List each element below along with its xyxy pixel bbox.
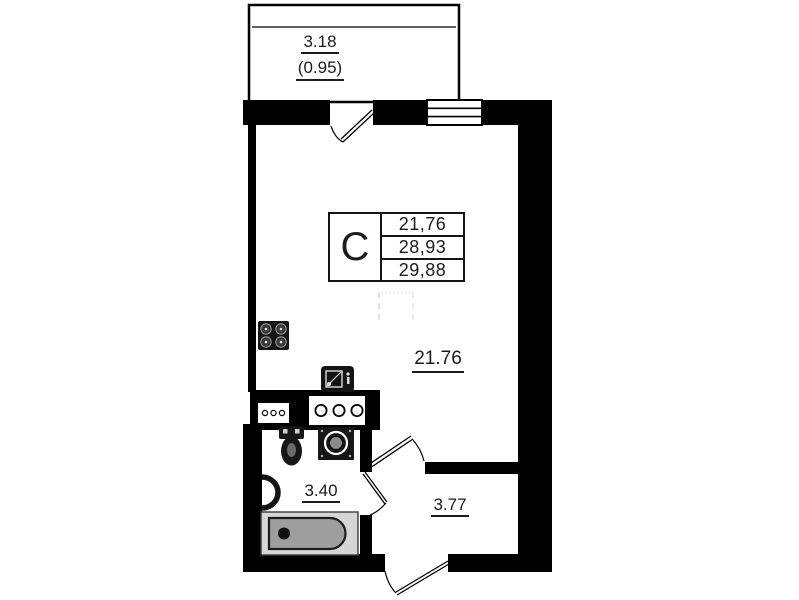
living-area-value: 21.76 bbox=[412, 347, 464, 373]
kitchen-sink-icon bbox=[321, 366, 354, 392]
balcony-reduced-area-value: (0.95) bbox=[296, 57, 344, 80]
hallway-area-label: 3.77 bbox=[420, 494, 480, 517]
washing-machine-icon bbox=[318, 427, 354, 460]
bathroom-area-label: 3.40 bbox=[292, 480, 350, 503]
bathroom-area-value: 3.40 bbox=[302, 480, 339, 503]
entrance-door-swing-icon bbox=[385, 561, 449, 595]
balcony-door-swing-icon bbox=[331, 110, 374, 142]
walls bbox=[243, 100, 552, 572]
wall-bath-right-upper bbox=[360, 430, 372, 472]
unit-info-table: C 21,76 28,93 29,88 bbox=[328, 212, 465, 282]
wall-right bbox=[518, 100, 552, 572]
vent-duct-small-icon bbox=[257, 402, 290, 424]
room-door-swing-icon bbox=[368, 436, 424, 468]
bathtub-icon bbox=[261, 512, 358, 555]
floor-plan: C 21,76 28,93 29,88 3.18 (0.95) 21.76 3.… bbox=[0, 0, 799, 600]
wall-left-thick bbox=[243, 424, 262, 572]
wall-bottom-right bbox=[448, 554, 552, 572]
hallway-area-value: 3.77 bbox=[431, 494, 468, 517]
bathroom-door-swing-icon bbox=[363, 472, 387, 515]
wall-top-left bbox=[243, 100, 330, 125]
scan-artifact bbox=[378, 292, 414, 320]
living-area-label: 21.76 bbox=[401, 347, 475, 373]
stove-icon bbox=[258, 321, 289, 350]
vent-duct-large-icon bbox=[308, 395, 366, 426]
unit-type-cell: C bbox=[330, 214, 382, 280]
wash-basin-icon bbox=[262, 477, 278, 508]
unit-areas-column: 21,76 28,93 29,88 bbox=[382, 214, 463, 280]
unit-area-row: 29,88 bbox=[382, 258, 463, 281]
wall-room-hall bbox=[425, 462, 518, 474]
balcony-area-label: 3.18 (0.95) bbox=[258, 31, 382, 81]
toilet-icon bbox=[279, 426, 304, 466]
unit-area-row: 28,93 bbox=[382, 235, 463, 258]
wall-top-mid bbox=[373, 100, 427, 125]
unit-area-row: 21,76 bbox=[382, 214, 463, 235]
wall-bath-right-lower bbox=[360, 515, 372, 556]
balcony-area-value: 3.18 bbox=[301, 31, 338, 54]
window-icon bbox=[427, 100, 482, 125]
wall-left-thin bbox=[248, 122, 256, 392]
wall-bottom-left bbox=[243, 554, 385, 572]
